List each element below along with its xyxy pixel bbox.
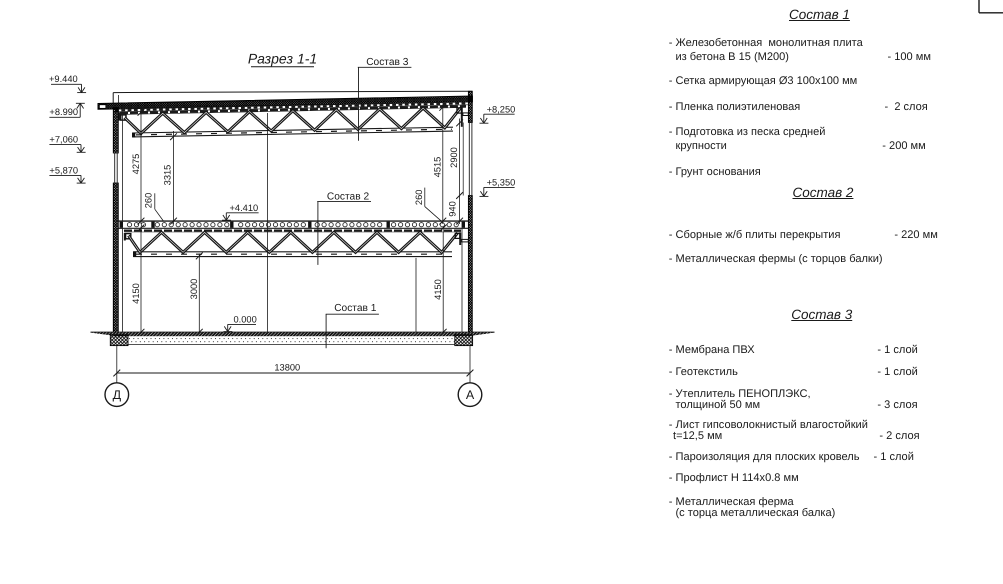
svg-text:+7,060: +7,060 <box>49 135 78 145</box>
svg-text:13800: 13800 <box>274 362 300 372</box>
svg-text:+5,350: +5,350 <box>487 177 516 187</box>
svg-text:Состав 2: Состав 2 <box>327 192 370 203</box>
svg-text:4150: 4150 <box>433 279 443 300</box>
svg-text:Состав 1: Состав 1 <box>334 303 377 314</box>
svg-text:+8.990: +8.990 <box>49 107 78 117</box>
svg-text:Д: Д <box>113 388 122 402</box>
svg-text:4150: 4150 <box>131 283 141 304</box>
svg-text:Разрез 1-1: Разрез 1-1 <box>248 51 317 67</box>
svg-text:4275: 4275 <box>131 154 141 175</box>
svg-text:260: 260 <box>143 193 153 209</box>
svg-text:4515: 4515 <box>432 157 442 178</box>
svg-text:3000: 3000 <box>189 279 199 300</box>
svg-text:А: А <box>466 388 475 402</box>
svg-text:2900: 2900 <box>449 147 459 168</box>
svg-text:0.000: 0.000 <box>234 315 257 325</box>
svg-text:940: 940 <box>448 201 458 217</box>
svg-text:260: 260 <box>414 190 424 206</box>
svg-text:+5,870: +5,870 <box>49 165 78 175</box>
svg-text:+4.410: +4.410 <box>230 203 259 213</box>
svg-text:+8,250: +8,250 <box>487 104 516 114</box>
svg-text:Состав 3: Состав 3 <box>366 57 409 68</box>
svg-text:3315: 3315 <box>162 165 172 186</box>
svg-text:+9.440: +9.440 <box>49 74 78 84</box>
